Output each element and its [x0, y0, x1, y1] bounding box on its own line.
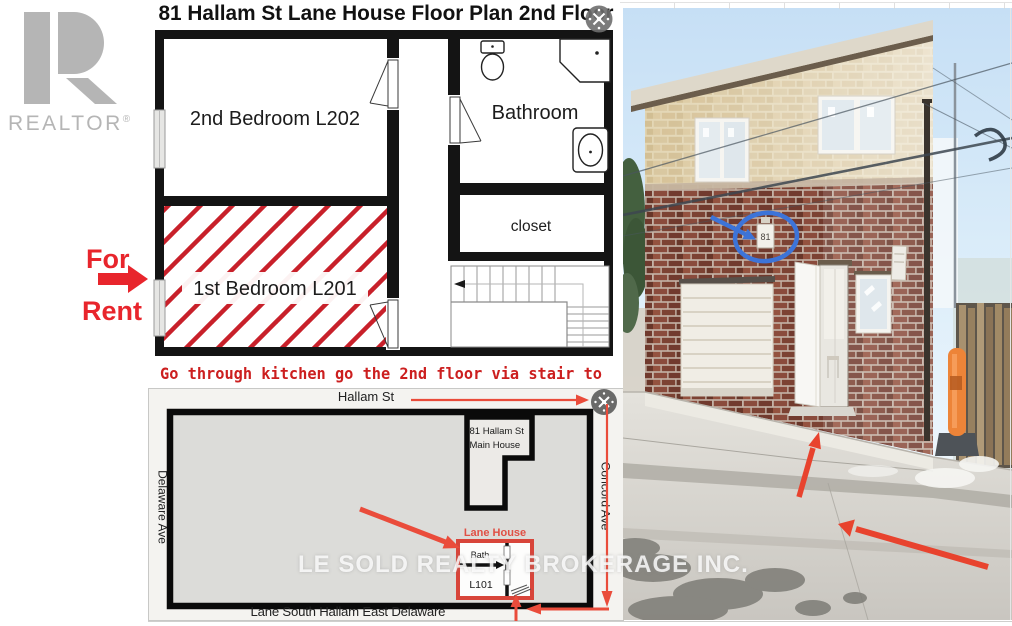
map-compass-icon: [591, 389, 617, 415]
wall-sign: [891, 246, 906, 280]
street-label-top: Hallam St: [338, 389, 395, 404]
porch-light: [761, 217, 770, 223]
bedroom2-label: 2nd Bedroom L202: [190, 108, 360, 130]
main-house-label-line1: 81 Hallam St: [470, 426, 525, 437]
for-rent-arrow-icon: [98, 264, 150, 294]
garage-door: [679, 276, 775, 396]
listing-collage: REALTOR® For Rent 81 Hallam St Lane Hous…: [0, 0, 1012, 626]
closet-label: closet: [511, 218, 552, 235]
interior-chair: [827, 356, 839, 360]
lower-right-window: [854, 271, 893, 333]
for-rent-line2: Rent: [82, 298, 142, 325]
street-label-bottom: Lane South Hallam East Delaware: [251, 604, 446, 619]
door-threshold: [788, 407, 856, 416]
site-map: Hallam St Delaware Ave Concord Ave Lane …: [148, 388, 625, 626]
grid-ticks-top: [620, 2, 1012, 9]
grid-line-right: [1010, 8, 1011, 620]
floor-plan: 81 Hallam St Lane House Floor Plan 2nd F…: [150, 0, 622, 388]
compass-icon: [586, 6, 613, 33]
downspout: [924, 101, 930, 441]
lane-house-unit-label: L101: [469, 579, 493, 591]
main-house-label-line2: Main House: [470, 440, 521, 451]
realtor-logo-bar: [24, 12, 50, 104]
registered-mark: ®: [123, 114, 130, 125]
upper-right-window: [818, 96, 895, 154]
stairs-symbol: [451, 266, 609, 347]
toilet-bowl-icon: [482, 54, 504, 80]
realtor-logo-bowl: [58, 12, 104, 74]
instruction-note: Go through kitchen go the 2nd floor via …: [160, 364, 602, 383]
bedroom1-label: 1st Bedroom L201: [193, 278, 356, 300]
house-photo: 81: [623, 8, 1012, 620]
upper-left-window: [695, 118, 749, 182]
address-plaque-number: 81: [760, 232, 770, 242]
realtor-wordmark-text: REALTOR: [8, 112, 123, 135]
street-label-left: Delaware Ave: [156, 470, 170, 544]
lane-house-label: Lane House: [464, 527, 526, 539]
bottom-border-line: [148, 621, 1012, 622]
realtor-logo: [14, 10, 134, 112]
brokerage-watermark: LE SOLD REALTY BROKERAGE INC.: [298, 551, 749, 579]
bathroom-label: Bathroom: [492, 102, 579, 124]
entry-door: [788, 260, 856, 416]
realtor-logo-leg: [66, 78, 117, 104]
floor-plan-title: 81 Hallam St Lane House Floor Plan 2nd F…: [159, 1, 615, 25]
street-label-right: Concord Ave: [599, 462, 613, 531]
realtor-wordmark: REALTOR®: [8, 112, 130, 136]
